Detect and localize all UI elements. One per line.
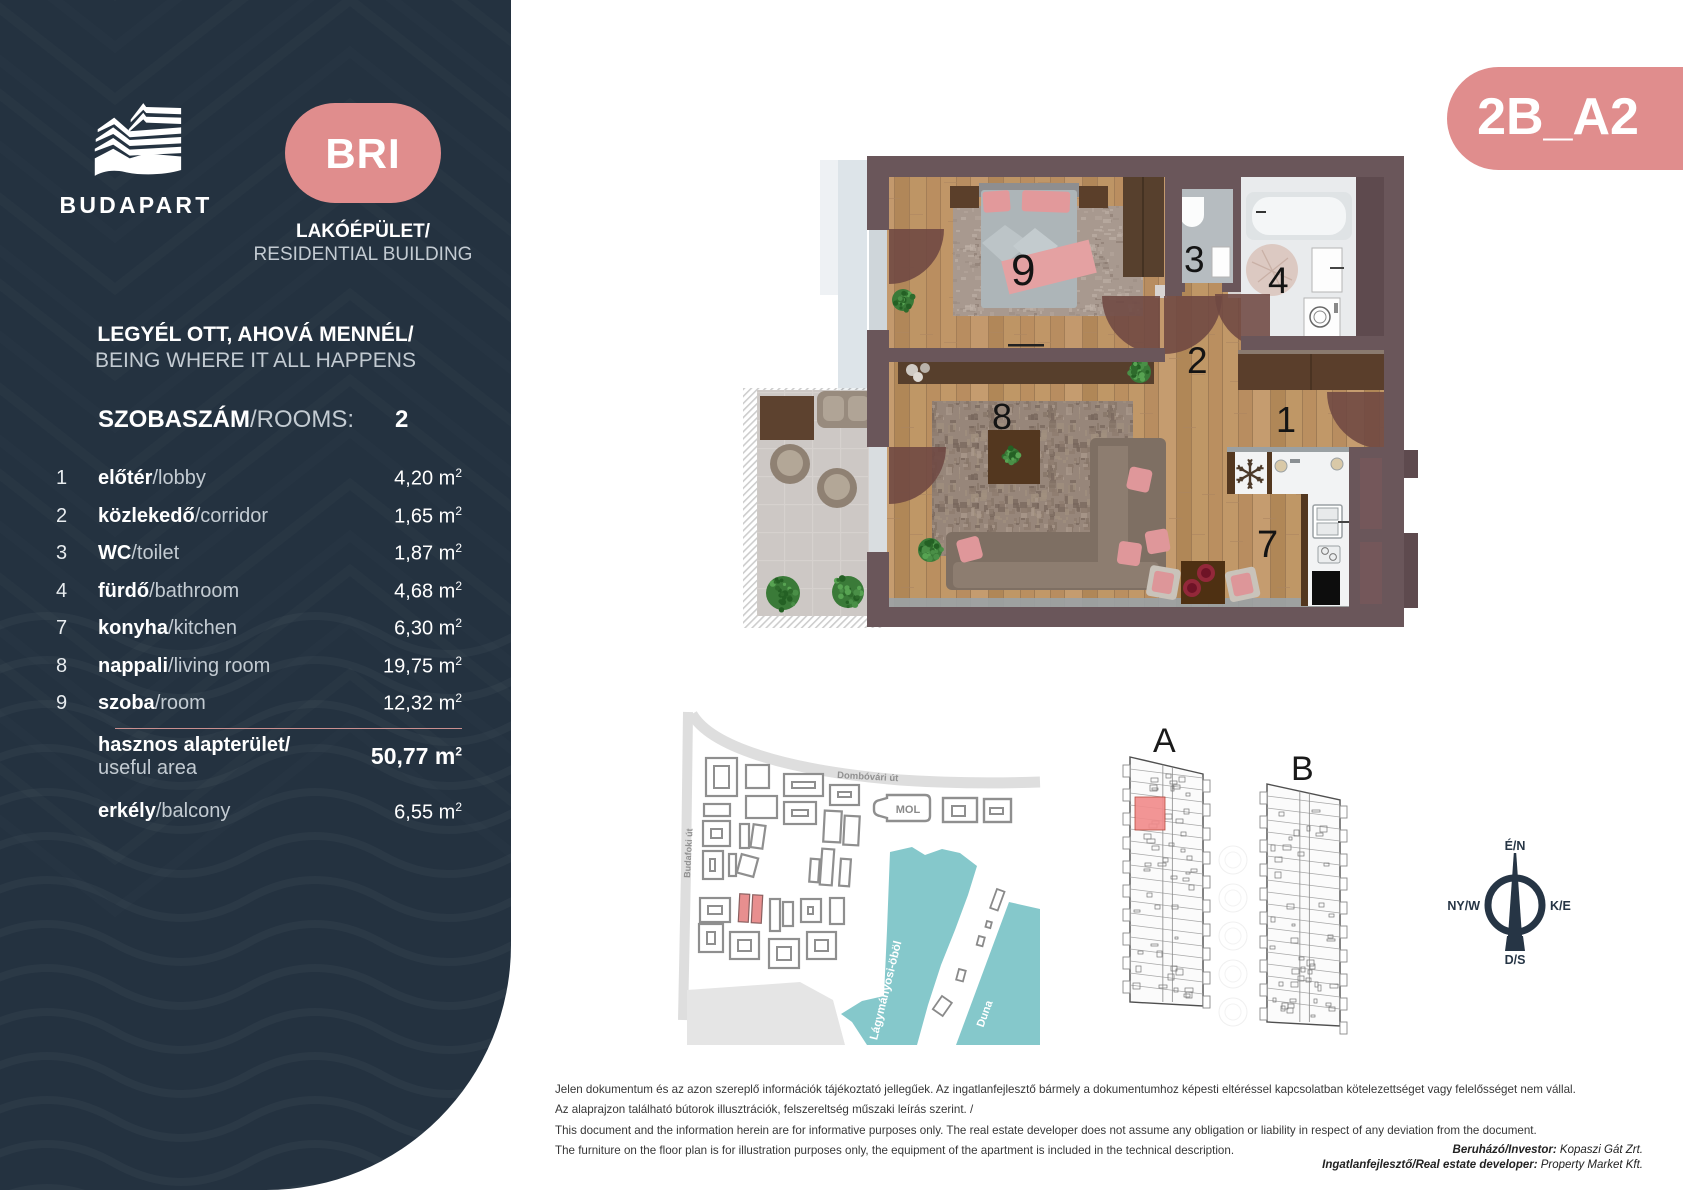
svg-text:4: 4 <box>1268 260 1289 301</box>
svg-text:7: 7 <box>1257 524 1278 566</box>
svg-text:Budafoki út: Budafoki út <box>682 828 695 878</box>
svg-text:MOL: MOL <box>896 804 921 816</box>
svg-text:8: 8 <box>992 396 1012 437</box>
svg-text:1: 1 <box>1276 399 1296 440</box>
svg-text:É/N: É/N <box>1505 838 1526 853</box>
svg-text:D/S: D/S <box>1505 953 1526 967</box>
svg-text:2: 2 <box>1187 340 1208 381</box>
svg-text:9: 9 <box>1011 246 1035 295</box>
svg-text:Dombóvári út: Dombóvári út <box>837 770 900 784</box>
svg-text:NY/W: NY/W <box>1447 899 1480 913</box>
svg-text:B: B <box>1291 750 1314 788</box>
svg-text:K/E: K/E <box>1550 899 1571 913</box>
svg-text:3: 3 <box>1184 239 1205 280</box>
svg-text:A: A <box>1153 722 1176 760</box>
